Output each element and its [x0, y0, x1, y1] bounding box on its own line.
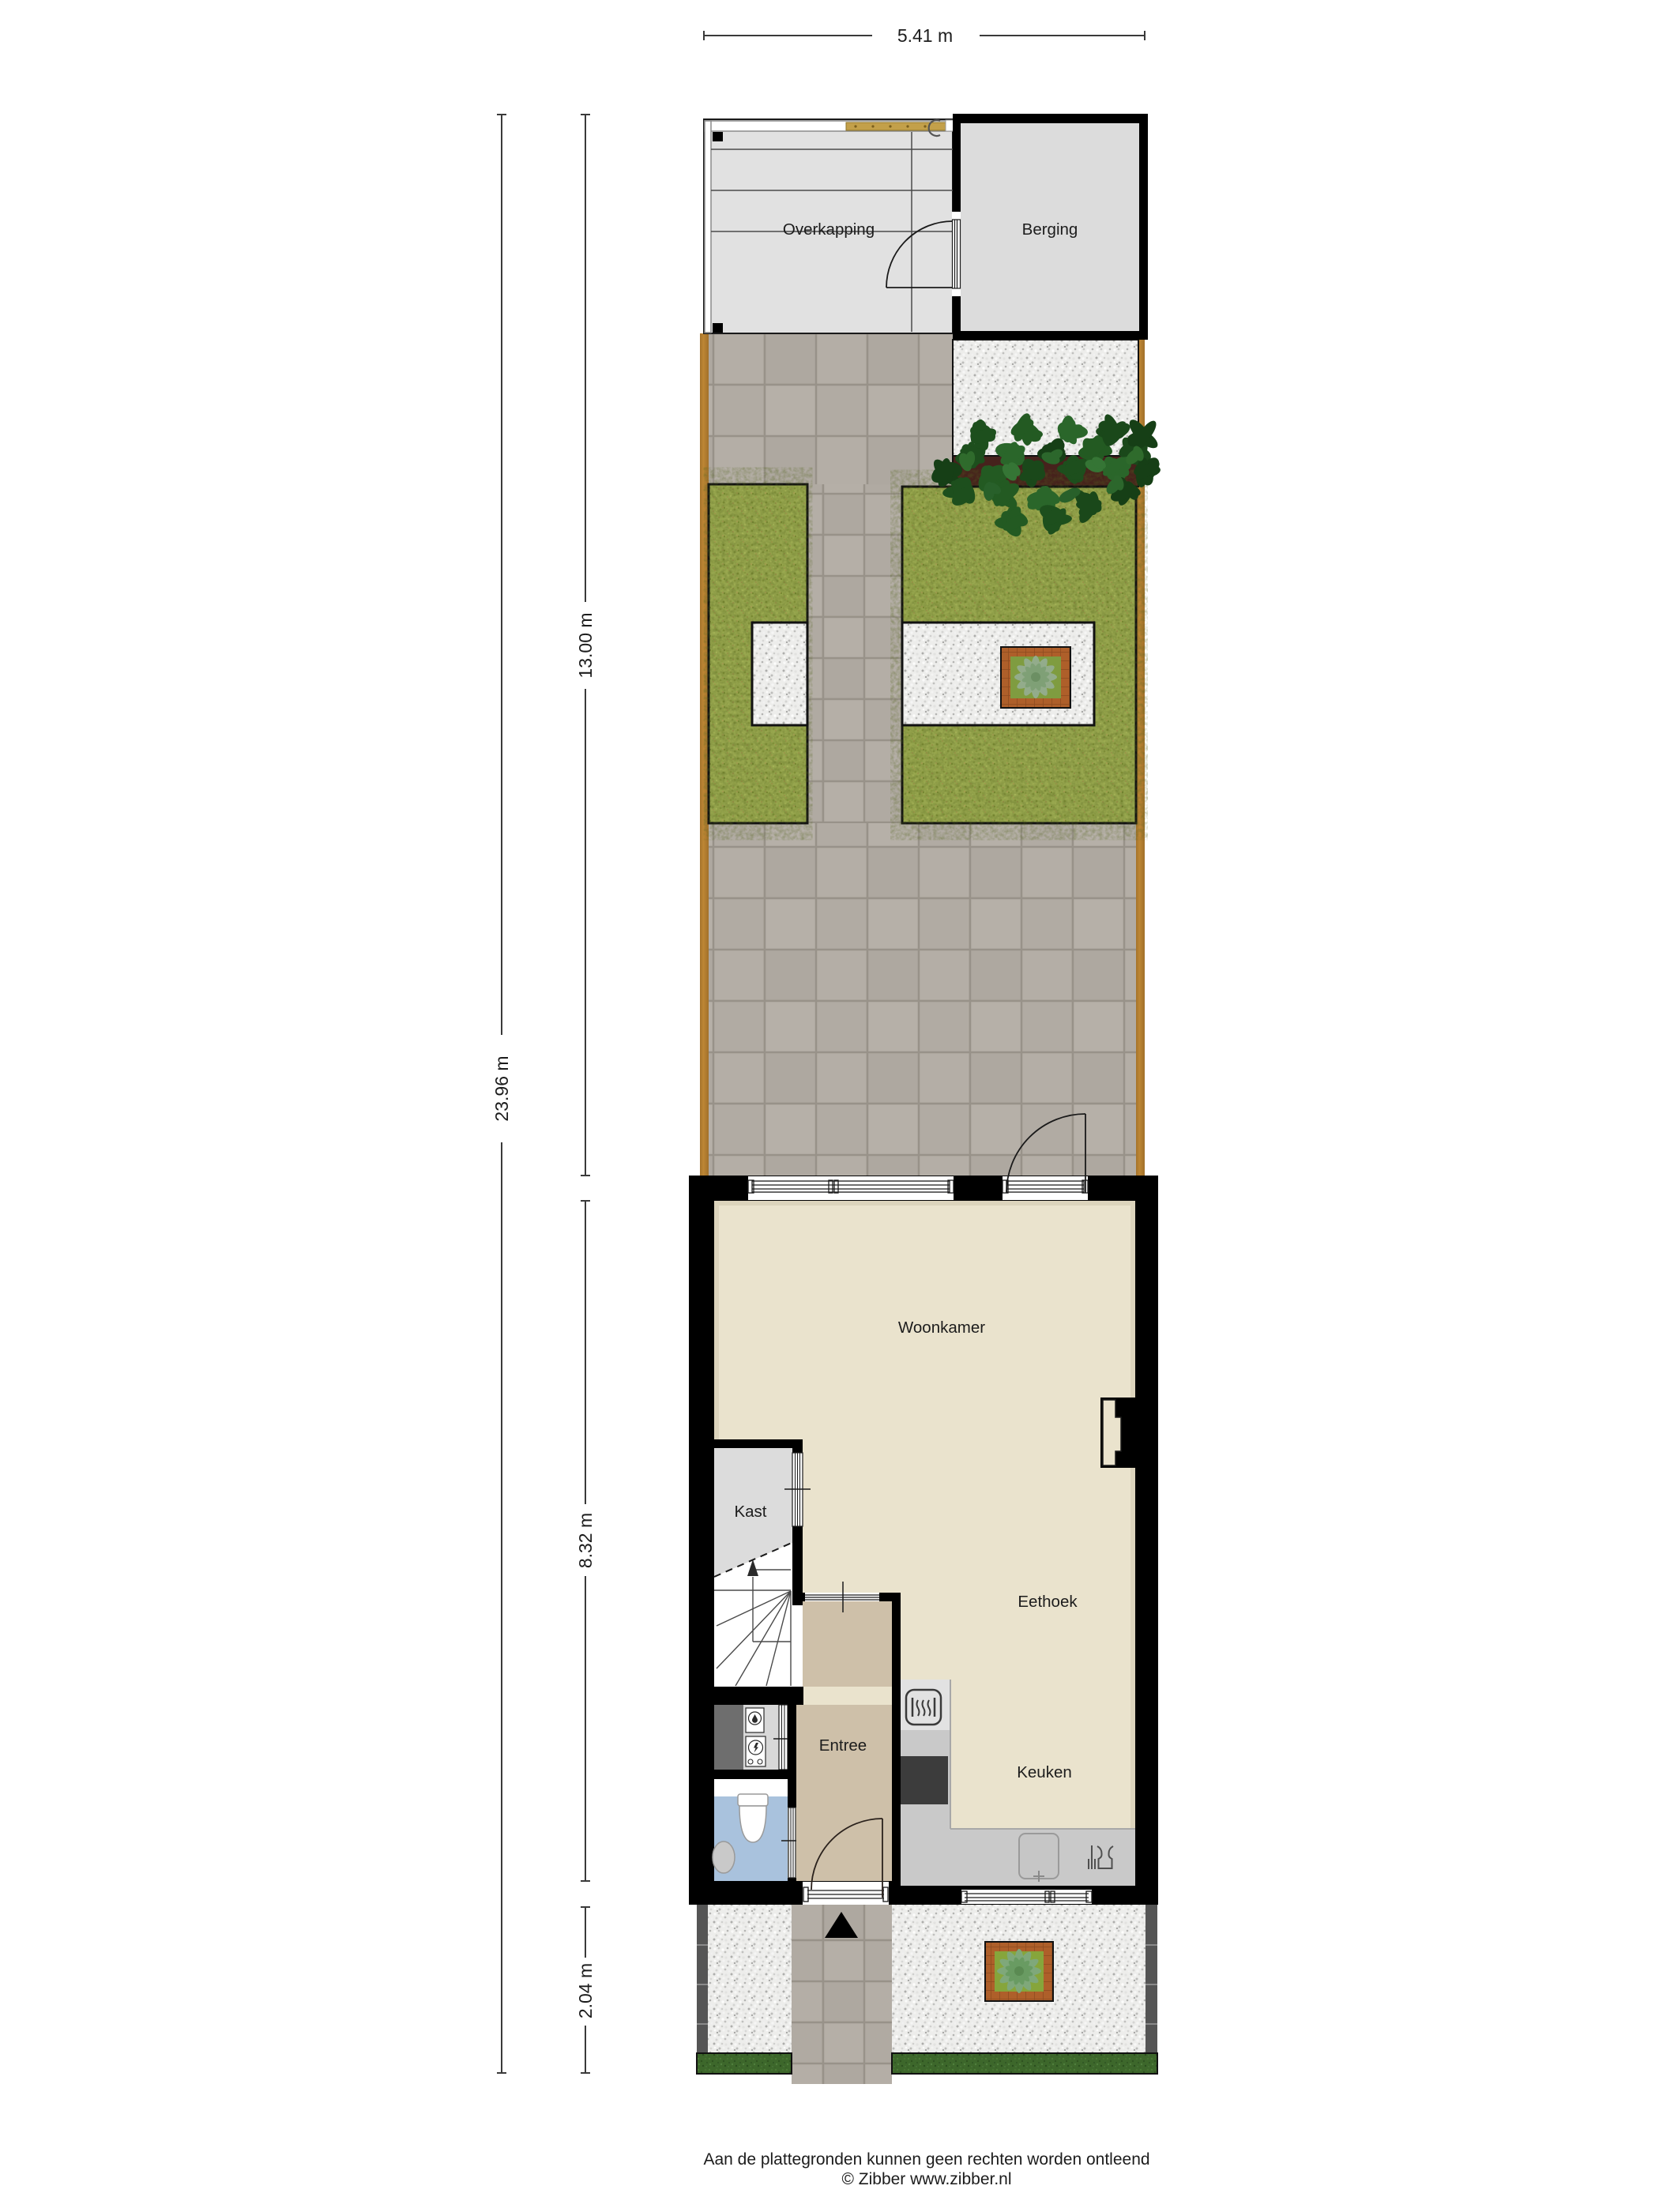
- svg-text:5.41 m: 5.41 m: [897, 25, 953, 46]
- svg-text:8.32 m: 8.32 m: [575, 1513, 596, 1568]
- svg-text:Overkapping: Overkapping: [783, 220, 875, 239]
- svg-text:Aan de plattegronden kunnen ge: Aan de plattegronden kunnen geen rechten…: [703, 2150, 1149, 2169]
- svg-text:2.04 m: 2.04 m: [575, 1963, 596, 2018]
- svg-text:© Zibber www.zibber.nl: © Zibber www.zibber.nl: [841, 2170, 1011, 2188]
- svg-text:13.00 m: 13.00 m: [575, 612, 596, 678]
- svg-text:23.96 m: 23.96 m: [491, 1055, 512, 1121]
- svg-text:Eethoek: Eethoek: [1018, 1593, 1078, 1611]
- svg-text:Berging: Berging: [1022, 220, 1078, 239]
- svg-text:Keuken: Keuken: [1017, 1763, 1072, 1781]
- svg-text:Entree: Entree: [819, 1736, 867, 1755]
- svg-text:Kast: Kast: [734, 1503, 766, 1521]
- svg-text:Woonkamer: Woonkamer: [898, 1319, 985, 1337]
